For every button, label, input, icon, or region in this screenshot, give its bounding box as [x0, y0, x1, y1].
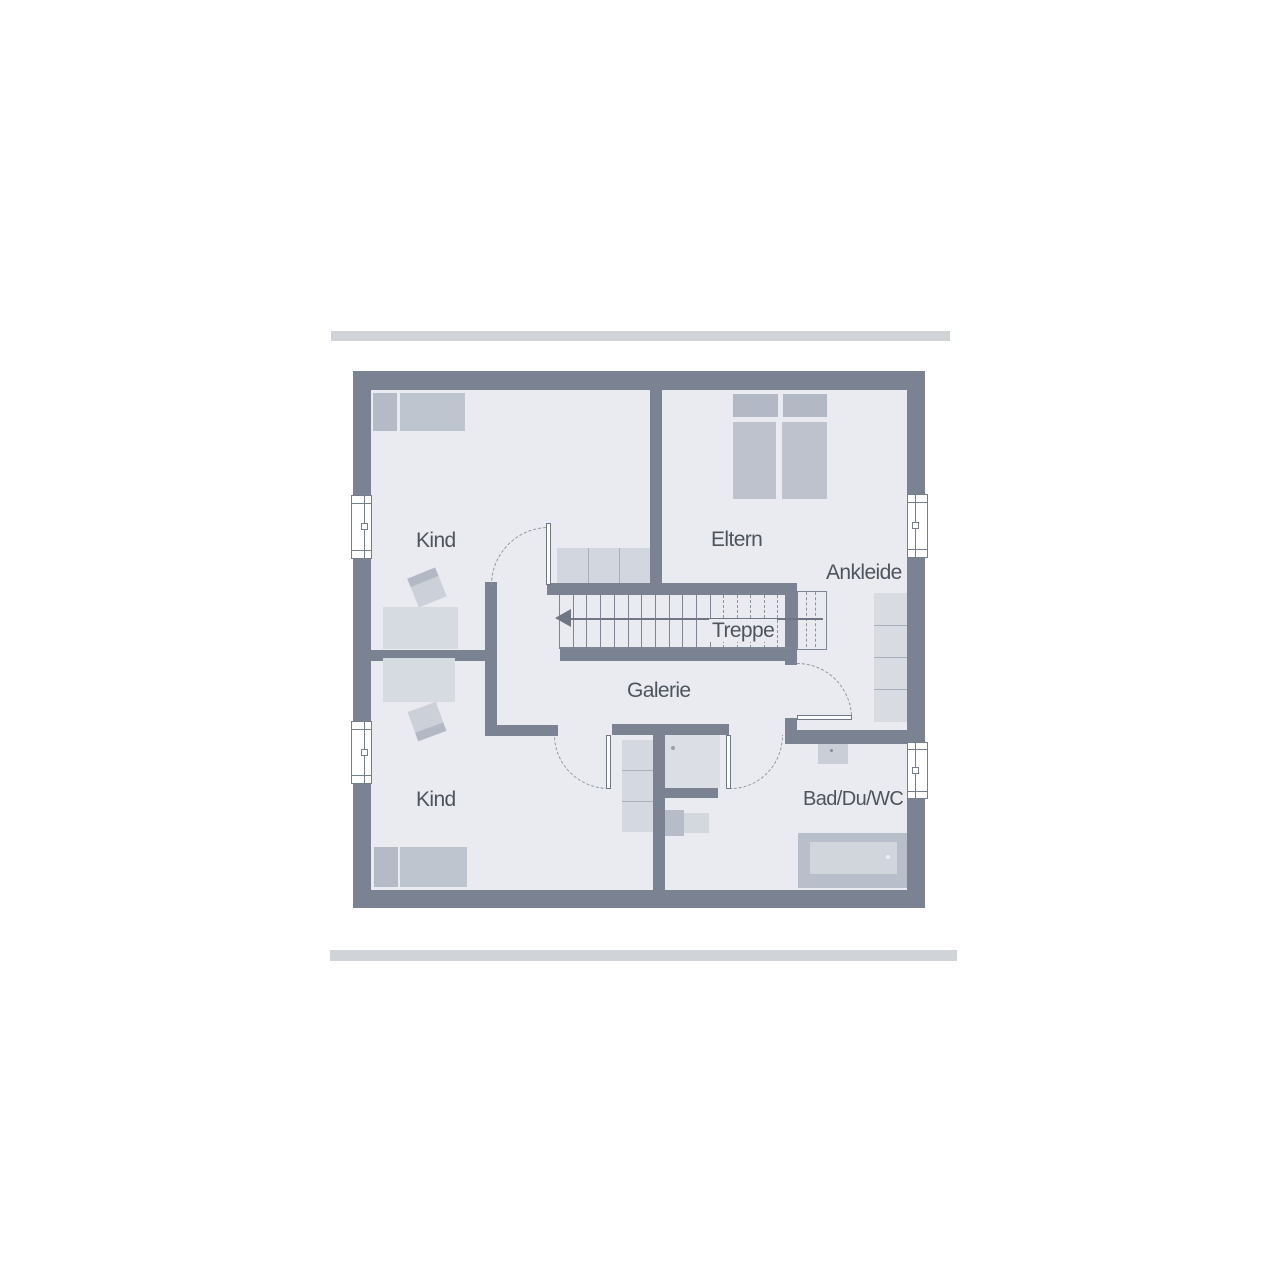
wardrobe-divider: [874, 689, 907, 690]
window-frame-line: [908, 502, 927, 503]
door-leaf-kind-bottom: [606, 735, 611, 789]
stair-tread: [682, 595, 683, 648]
outer-wall-bottom: [353, 890, 925, 908]
bed-pillow-kind-top: [373, 393, 397, 431]
bathtub: [798, 833, 907, 888]
window-frame-line: [908, 749, 927, 750]
top-divider-bar: [331, 331, 950, 341]
bed-pillow-kind-bottom: [374, 847, 398, 887]
wall-kind-eltern: [650, 390, 662, 583]
window-frame-line: [908, 549, 927, 550]
toilet-tank: [665, 810, 684, 836]
room-label-kind-top: Kind: [416, 530, 456, 551]
wall-galerie-south-mid: [612, 724, 729, 735]
bottom-divider-bar: [330, 950, 957, 961]
stair-direction-line: [563, 618, 823, 620]
outer-wall-right: [907, 371, 925, 908]
bathtub-inner: [810, 842, 897, 874]
stair-tread: [573, 595, 574, 648]
room-label-galerie: Galerie: [627, 680, 691, 701]
bed-kind-bottom: [400, 847, 467, 887]
bathtub-drain-dot: [886, 855, 890, 859]
wall-bath-west: [653, 735, 665, 890]
bed-parents-left: [733, 422, 776, 499]
door-leaf-kind-top: [546, 523, 551, 585]
cabinet-divider: [622, 770, 653, 771]
wall-stair-right: [785, 583, 797, 665]
window-right-lower: [907, 742, 928, 799]
window-right-upper: [907, 494, 928, 558]
desk-kind-top: [383, 607, 458, 649]
stair-stringer-line: [559, 647, 797, 649]
toilet-bowl: [684, 813, 709, 833]
stair-tread: [600, 595, 601, 648]
room-label-kind-bottom: Kind: [416, 789, 456, 810]
window-handle: [912, 522, 919, 529]
window-left-upper: [351, 495, 372, 559]
shower-drain-dot: [671, 746, 675, 750]
wardrobe-divider: [874, 657, 907, 658]
door-leaf-ankleide: [797, 715, 852, 720]
wall-stair-bottom: [560, 649, 797, 661]
wall-shower-stub: [665, 788, 718, 798]
room-label-ankleide: Ankleide: [826, 562, 902, 583]
window-frame-line: [908, 791, 927, 792]
cabinet-divider: [622, 801, 653, 802]
window-frame-line: [352, 503, 371, 504]
window-left-lower: [351, 721, 372, 784]
wardrobe-divider: [874, 625, 907, 626]
wardrobe-divider: [588, 548, 589, 583]
wall-galerie-west: [485, 582, 497, 736]
washbasin: [818, 744, 848, 764]
room-label-treppe: Treppe: [709, 619, 777, 642]
floor-plan-page: Kind Eltern Ankleide Treppe Galerie Kind…: [0, 0, 1280, 1280]
cabinet-kind-bottom: [622, 740, 653, 832]
stair-tread: [586, 595, 587, 648]
desk-kind-bottom: [383, 658, 455, 702]
wardrobe-ankleide: [874, 593, 907, 722]
stair-tread: [628, 595, 629, 648]
window-frame-line: [352, 550, 371, 551]
bed-kind-top: [400, 393, 465, 431]
window-handle: [361, 749, 368, 756]
outer-wall-left: [353, 371, 371, 908]
door-leaf-bath: [726, 735, 731, 789]
wall-galerie-south-left: [485, 725, 558, 736]
wall-bath-north: [785, 730, 907, 744]
bed-parents-right: [782, 422, 827, 499]
window-handle: [361, 523, 368, 530]
stair-tread: [669, 595, 670, 648]
outer-wall-top: [353, 371, 925, 390]
stair-direction-arrow-icon: [555, 609, 571, 627]
window-frame-line: [352, 729, 371, 730]
window-frame-line: [352, 775, 371, 776]
stair-tread: [655, 595, 656, 648]
stair-tread: [614, 595, 615, 648]
stair-upper-flight-box: [797, 591, 827, 650]
stair-tread: [641, 595, 642, 648]
wall-stair-top: [547, 583, 797, 595]
wardrobe-divider: [619, 548, 620, 583]
washbasin-tap-dot: [830, 749, 833, 752]
shower: [665, 735, 720, 788]
room-label-bad: Bad/Du/WC: [803, 789, 903, 809]
wall-bath-north-step: [785, 718, 797, 730]
stair-tread: [696, 595, 697, 648]
window-handle: [912, 767, 919, 774]
room-label-eltern: Eltern: [711, 529, 762, 550]
wardrobe-kind-top: [557, 548, 650, 583]
bed-pillow-parents-left: [733, 394, 778, 417]
bed-pillow-parents-right: [783, 394, 827, 417]
